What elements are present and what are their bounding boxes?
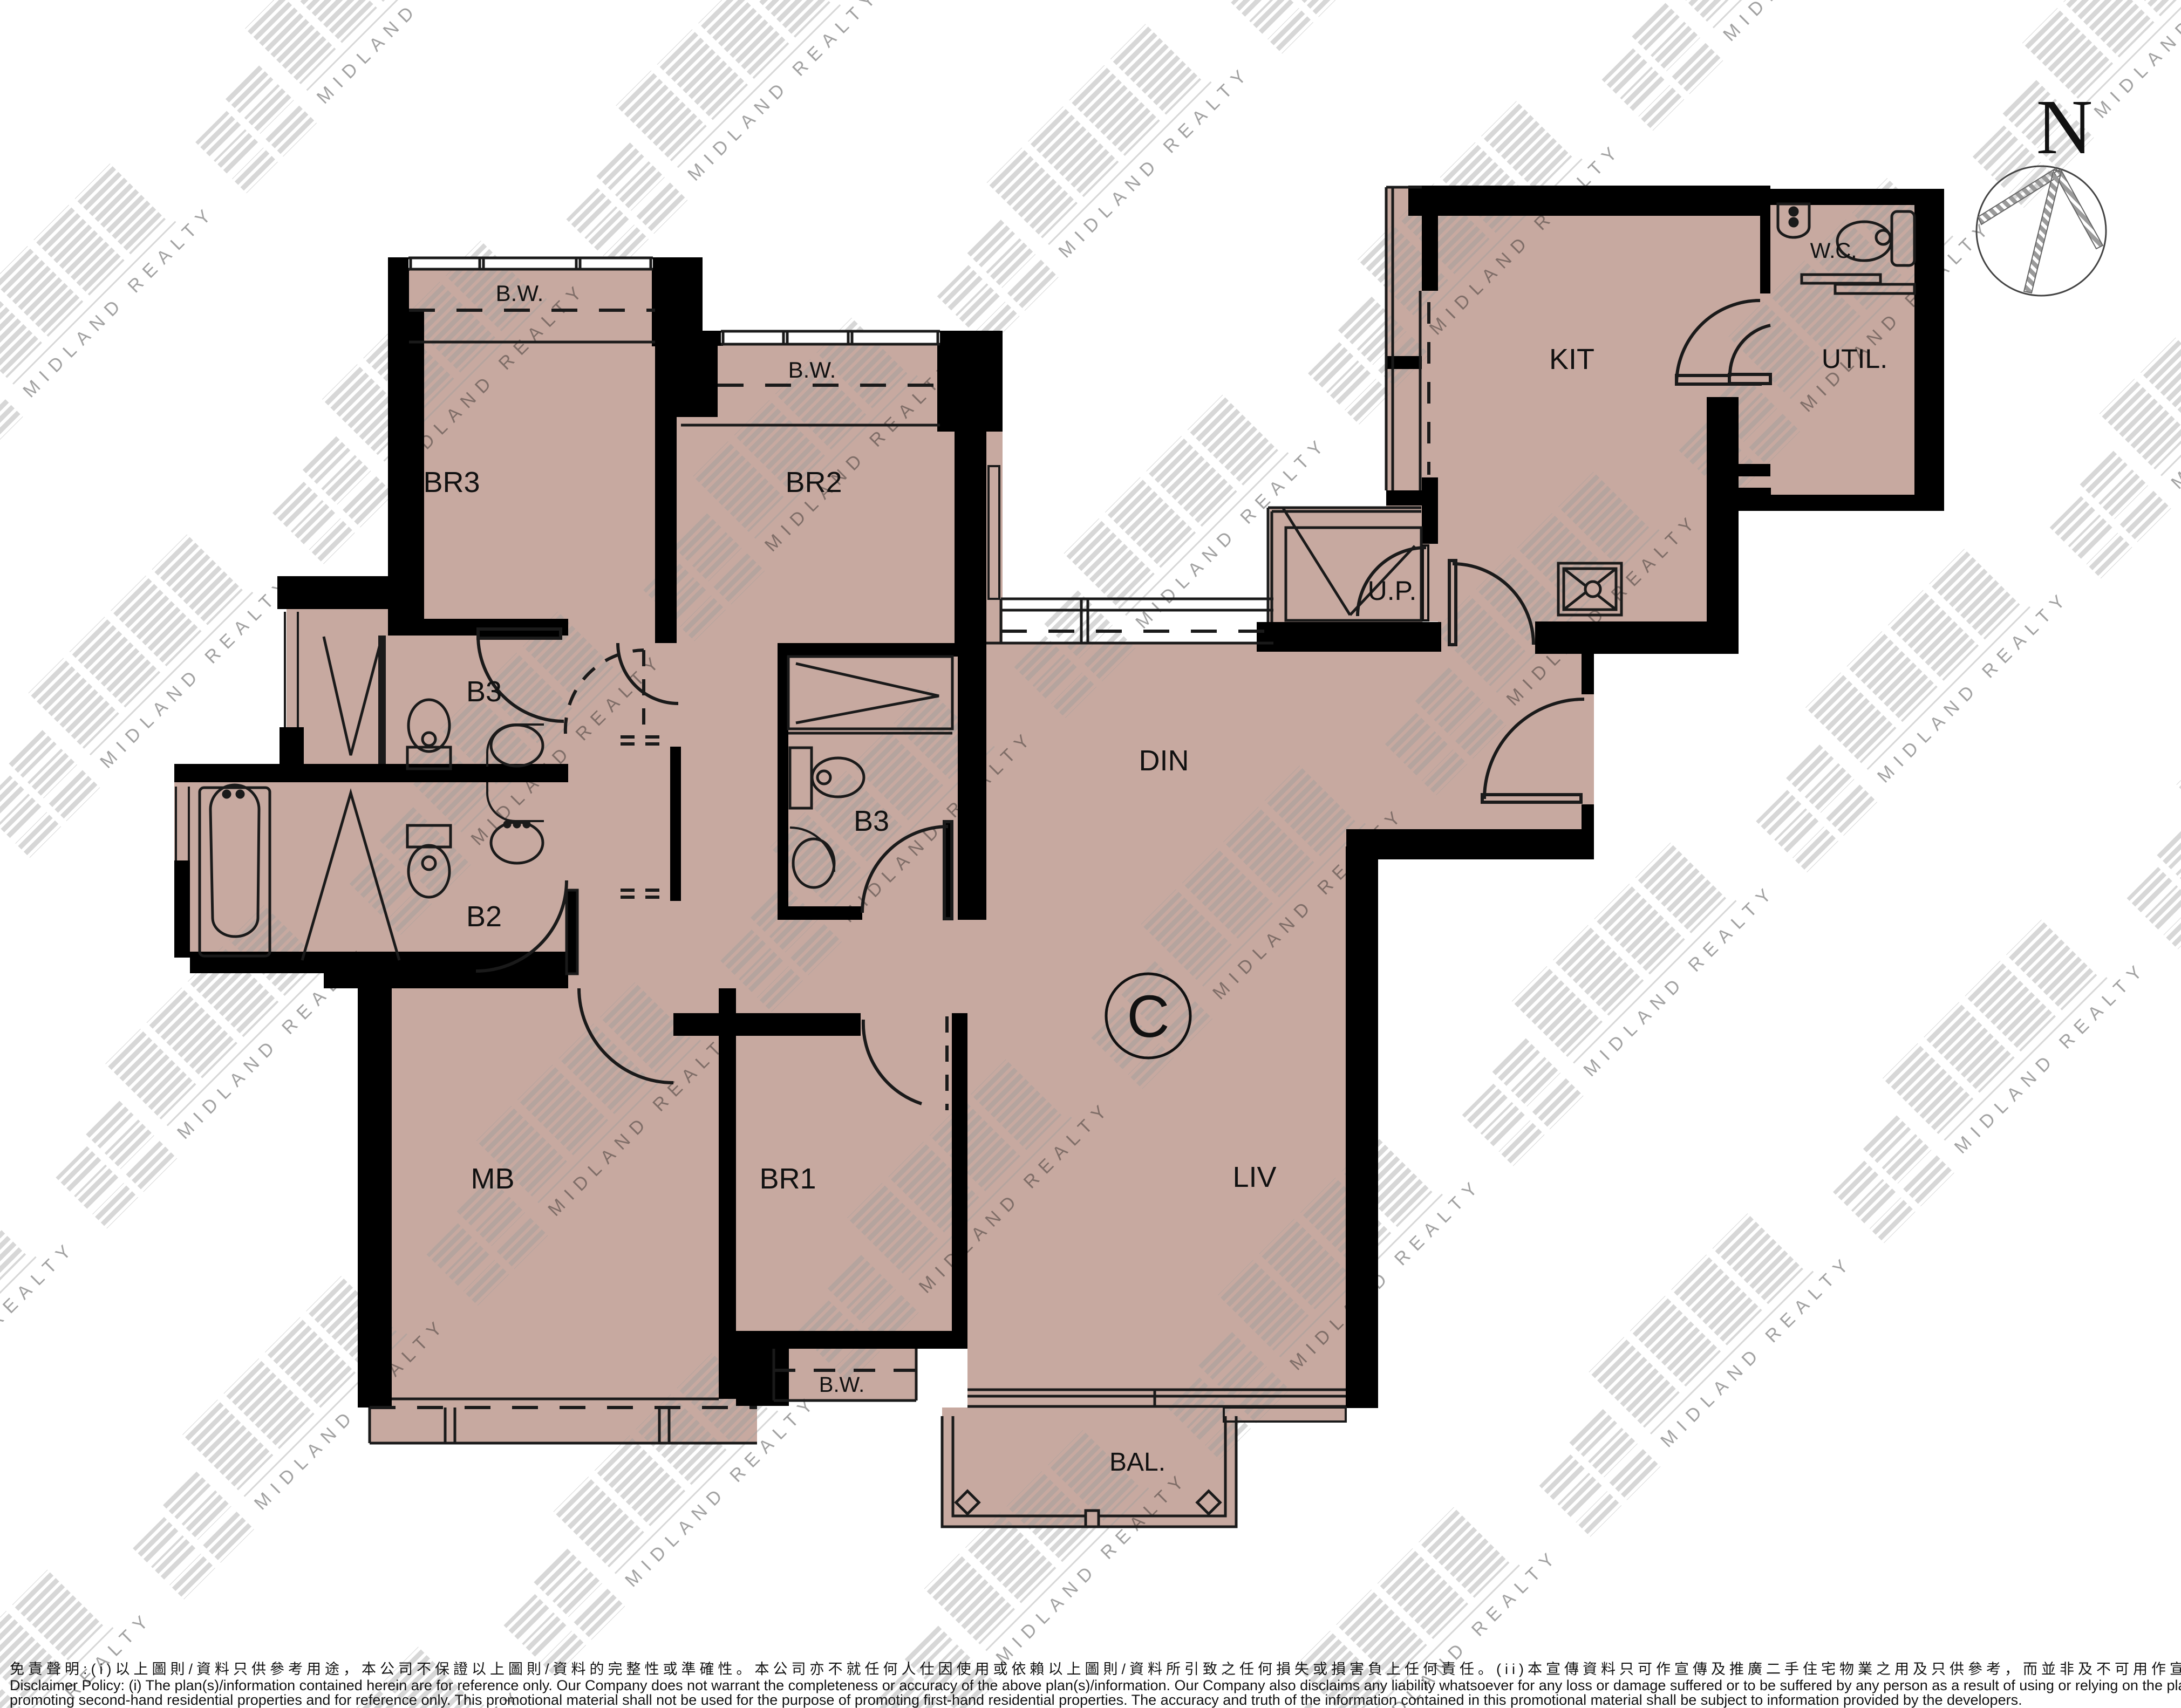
svg-text:Disclaimer Policy: (i) The pla: Disclaimer Policy: (i) The plan(s)/infor…	[10, 1677, 2181, 1693]
svg-text:B2: B2	[466, 900, 502, 933]
svg-text:MB: MB	[471, 1163, 515, 1195]
svg-text:B.W.: B.W.	[788, 357, 836, 382]
svg-text:B3: B3	[854, 805, 889, 837]
svg-text:KIT: KIT	[1549, 343, 1594, 375]
svg-text:UTIL.: UTIL.	[1822, 344, 1887, 374]
svg-text:BR1: BR1	[759, 1163, 816, 1195]
svg-text:BAL.: BAL.	[1109, 1448, 1166, 1477]
svg-text:B.W.: B.W.	[496, 281, 544, 306]
svg-text:N: N	[2036, 84, 2093, 170]
svg-text:U.P.: U.P.	[1368, 576, 1417, 606]
svg-text:C: C	[1127, 983, 1169, 1050]
svg-text:DIN: DIN	[1139, 744, 1189, 777]
svg-text:BR2: BR2	[785, 466, 842, 498]
svg-text:LIV: LIV	[1232, 1161, 1276, 1193]
svg-text:B.W.: B.W.	[819, 1373, 864, 1397]
svg-text:BR3: BR3	[423, 466, 480, 498]
svg-text:免責聲明:(i)以上圖則/資料只供參考用途，本公司不保證以上: 免責聲明:(i)以上圖則/資料只供參考用途，本公司不保證以上圖則/資料的完整性或…	[10, 1661, 2181, 1677]
svg-text:promoting second-hand resident: promoting second-hand residential proper…	[10, 1692, 2022, 1708]
svg-text:B3: B3	[466, 675, 502, 708]
svg-text:W.C.: W.C.	[1810, 239, 1857, 263]
